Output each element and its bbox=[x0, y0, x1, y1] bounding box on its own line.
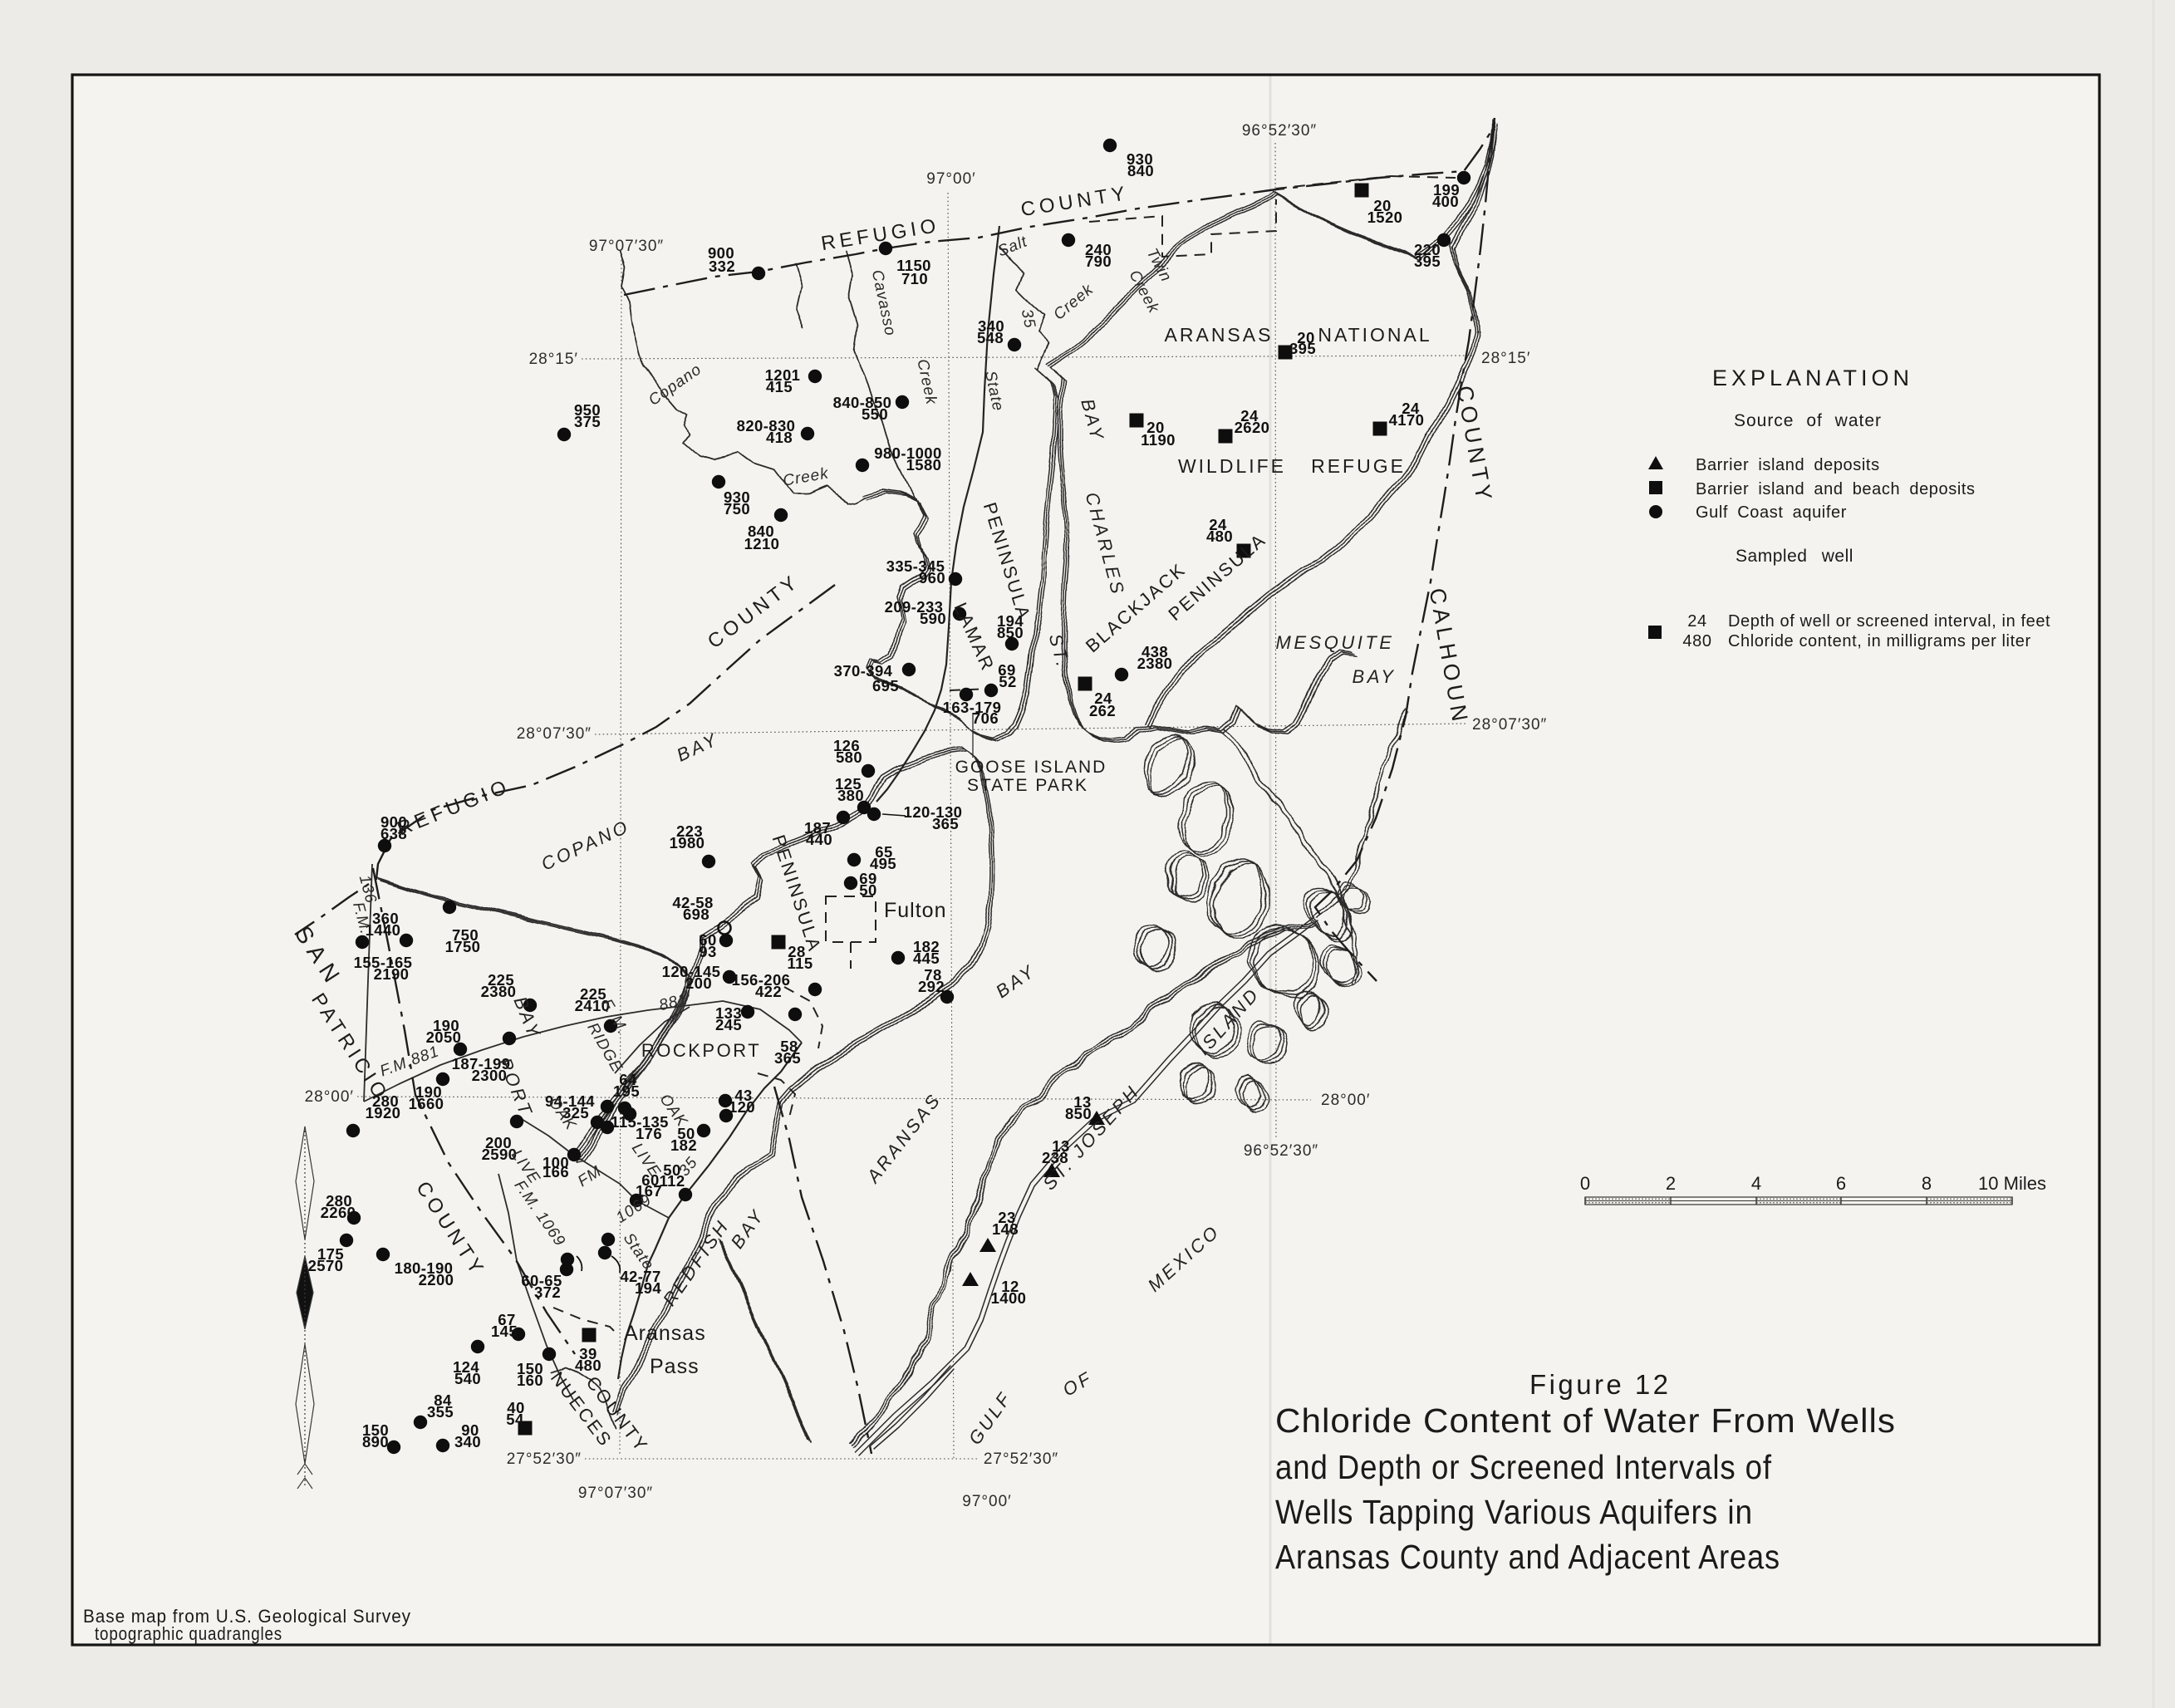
svg-text:790: 790 bbox=[1085, 253, 1112, 270]
svg-text:355: 355 bbox=[427, 1403, 454, 1421]
svg-text:93: 93 bbox=[699, 943, 716, 960]
svg-text:1750: 1750 bbox=[445, 938, 481, 955]
svg-text:28°15′: 28°15′ bbox=[529, 351, 578, 368]
svg-text:698: 698 bbox=[683, 906, 709, 923]
svg-text:340: 340 bbox=[454, 1433, 481, 1450]
svg-text:166: 166 bbox=[543, 1163, 569, 1180]
svg-text:97°07′30″: 97°07′30″ bbox=[578, 1485, 653, 1502]
svg-text:415: 415 bbox=[766, 378, 793, 395]
svg-text:1980: 1980 bbox=[670, 834, 705, 852]
svg-text:Figure 12: Figure 12 bbox=[1529, 1369, 1671, 1400]
svg-text:418: 418 bbox=[766, 429, 793, 446]
svg-text:4: 4 bbox=[1751, 1173, 1761, 1194]
svg-text:Sampled well: Sampled well bbox=[1736, 547, 1853, 566]
svg-text:GOOSE ISLAND: GOOSE ISLAND bbox=[955, 758, 1107, 777]
svg-text:540: 540 bbox=[454, 1370, 481, 1387]
svg-text:28°15′: 28°15′ bbox=[1481, 350, 1530, 367]
svg-text:365: 365 bbox=[774, 1049, 801, 1067]
svg-text:120: 120 bbox=[729, 1098, 755, 1116]
svg-text:1190: 1190 bbox=[1141, 431, 1176, 449]
svg-text:BAY: BAY bbox=[1353, 666, 1397, 687]
svg-text:STATE PARK: STATE PARK bbox=[967, 776, 1088, 795]
svg-text:97°07′30″: 97°07′30″ bbox=[589, 238, 664, 255]
svg-text:97°00′: 97°00′ bbox=[962, 1493, 1011, 1510]
svg-text:54: 54 bbox=[506, 1411, 524, 1428]
svg-text:28°07′30″: 28°07′30″ bbox=[1472, 716, 1547, 734]
svg-text:706: 706 bbox=[972, 709, 999, 727]
svg-text:28°07′30″: 28°07′30″ bbox=[517, 725, 592, 743]
svg-text:96°52′30″: 96°52′30″ bbox=[1242, 122, 1317, 140]
svg-text:50: 50 bbox=[859, 881, 876, 899]
svg-text:200: 200 bbox=[685, 974, 712, 992]
svg-text:Barrier island deposits: Barrier island deposits bbox=[1696, 456, 1880, 474]
svg-text:840: 840 bbox=[1127, 162, 1154, 179]
svg-text:380: 380 bbox=[837, 787, 864, 804]
svg-text:422: 422 bbox=[755, 983, 782, 1000]
svg-text:2620: 2620 bbox=[1235, 419, 1270, 436]
svg-text:EXPLANATION: EXPLANATION bbox=[1712, 366, 1913, 390]
svg-text:and Depth or Screened Interval: and Depth or Screened Intervals of bbox=[1275, 1448, 1772, 1486]
svg-text:2190: 2190 bbox=[374, 965, 410, 983]
svg-text:480: 480 bbox=[1682, 632, 1711, 650]
svg-text:445: 445 bbox=[913, 950, 940, 967]
svg-text:28°00′: 28°00′ bbox=[305, 1088, 354, 1106]
svg-text:850: 850 bbox=[1065, 1105, 1092, 1122]
svg-text:695: 695 bbox=[872, 677, 899, 694]
svg-text:1660: 1660 bbox=[409, 1095, 444, 1112]
svg-text:195: 195 bbox=[613, 1082, 640, 1100]
svg-text:10 Miles: 10 Miles bbox=[1978, 1173, 2046, 1194]
svg-text:Source of water: Source of water bbox=[1734, 411, 1882, 430]
svg-text:395: 395 bbox=[1289, 340, 1316, 357]
svg-text:97°00′: 97°00′ bbox=[926, 170, 975, 188]
svg-text:1520: 1520 bbox=[1367, 209, 1403, 226]
svg-text:176: 176 bbox=[636, 1125, 662, 1142]
svg-text:8: 8 bbox=[1922, 1173, 1932, 1194]
svg-text:Barrier island and beach d: Barrier island and beach deposits bbox=[1696, 480, 1976, 498]
svg-text:590: 590 bbox=[920, 610, 946, 627]
svg-text:1580: 1580 bbox=[906, 456, 942, 474]
svg-text:2050: 2050 bbox=[426, 1028, 462, 1046]
svg-text:890: 890 bbox=[362, 1433, 389, 1450]
svg-text:Aransas: Aransas bbox=[624, 1322, 706, 1345]
svg-text:52: 52 bbox=[999, 673, 1016, 690]
svg-text:292: 292 bbox=[918, 978, 945, 995]
svg-text:194: 194 bbox=[635, 1279, 661, 1297]
svg-text:Gulf Coast aquifer: Gulf Coast aquifer bbox=[1696, 503, 1847, 522]
svg-text:REFUGE: REFUGE bbox=[1311, 455, 1406, 477]
svg-text:548: 548 bbox=[977, 329, 1004, 346]
svg-text:4170: 4170 bbox=[1389, 411, 1425, 429]
svg-text:332: 332 bbox=[709, 258, 735, 275]
svg-text:Pass: Pass bbox=[650, 1355, 700, 1378]
svg-text:400: 400 bbox=[1432, 193, 1459, 210]
svg-text:440: 440 bbox=[806, 831, 832, 848]
svg-text:245: 245 bbox=[715, 1016, 742, 1033]
svg-text:550: 550 bbox=[862, 405, 888, 423]
svg-text:1400: 1400 bbox=[991, 1289, 1027, 1307]
svg-text:NATIONAL: NATIONAL bbox=[1318, 324, 1431, 346]
svg-text:MESQUITE: MESQUITE bbox=[1276, 632, 1395, 653]
svg-text:480: 480 bbox=[1206, 528, 1233, 545]
svg-text:375: 375 bbox=[574, 413, 601, 430]
svg-text:145: 145 bbox=[491, 1323, 518, 1340]
svg-text:2: 2 bbox=[1666, 1173, 1676, 1194]
svg-text:96°52′30″: 96°52′30″ bbox=[1244, 1142, 1318, 1160]
svg-text:Chloride Content of Water From: Chloride Content of Water From Wells bbox=[1275, 1401, 1896, 1440]
svg-text:27°52′30″: 27°52′30″ bbox=[507, 1450, 582, 1468]
svg-text:2380: 2380 bbox=[481, 983, 517, 1000]
svg-text:115: 115 bbox=[787, 955, 813, 972]
svg-text:2380: 2380 bbox=[1137, 655, 1173, 672]
svg-text:160: 160 bbox=[517, 1372, 543, 1389]
svg-text:ARANSAS: ARANSAS bbox=[1165, 324, 1274, 346]
svg-text:1920: 1920 bbox=[366, 1104, 401, 1121]
svg-text:850: 850 bbox=[997, 624, 1024, 641]
svg-text:750: 750 bbox=[724, 500, 750, 518]
svg-text:0: 0 bbox=[1580, 1173, 1590, 1194]
svg-text:WILDLIFE: WILDLIFE bbox=[1178, 455, 1286, 477]
svg-text:182: 182 bbox=[670, 1136, 697, 1154]
svg-text:1210: 1210 bbox=[744, 535, 780, 552]
svg-text:6: 6 bbox=[1836, 1173, 1846, 1194]
svg-text:365: 365 bbox=[932, 815, 959, 832]
svg-text:2260: 2260 bbox=[321, 1204, 356, 1221]
svg-text:Fulton: Fulton bbox=[884, 899, 946, 922]
svg-text:24: 24 bbox=[1687, 612, 1706, 631]
svg-text:ROCKPORT: ROCKPORT bbox=[641, 1040, 761, 1061]
svg-text:2200: 2200 bbox=[419, 1271, 454, 1288]
svg-text:28°00′: 28°00′ bbox=[1321, 1092, 1370, 1109]
svg-text:262: 262 bbox=[1089, 702, 1116, 719]
svg-text:148: 148 bbox=[992, 1220, 1019, 1238]
svg-text:112: 112 bbox=[659, 1172, 685, 1190]
svg-text:580: 580 bbox=[836, 748, 862, 766]
svg-text:2570: 2570 bbox=[308, 1257, 344, 1274]
svg-text:480: 480 bbox=[575, 1357, 601, 1374]
svg-text:395: 395 bbox=[1414, 253, 1441, 270]
svg-text:Aransas County and Adjacent Ar: Aransas County and Adjacent Areas bbox=[1275, 1538, 1780, 1576]
svg-text:27°52′30″: 27°52′30″ bbox=[984, 1450, 1058, 1468]
svg-text:960: 960 bbox=[919, 569, 945, 587]
svg-text:Depth of well or screened inte: Depth of well or screened interval, in f… bbox=[1728, 612, 2050, 631]
svg-text:Wells Tapping Various Aquifers: Wells Tapping Various Aquifers in bbox=[1275, 1493, 1753, 1531]
svg-text:710: 710 bbox=[901, 270, 928, 287]
svg-text:topographic quadrangles: topographic quadrangles bbox=[95, 1623, 282, 1644]
svg-text:372: 372 bbox=[534, 1283, 561, 1301]
svg-text:Chloride content, in milligram: Chloride content, in milligrams per lite… bbox=[1728, 632, 2031, 650]
